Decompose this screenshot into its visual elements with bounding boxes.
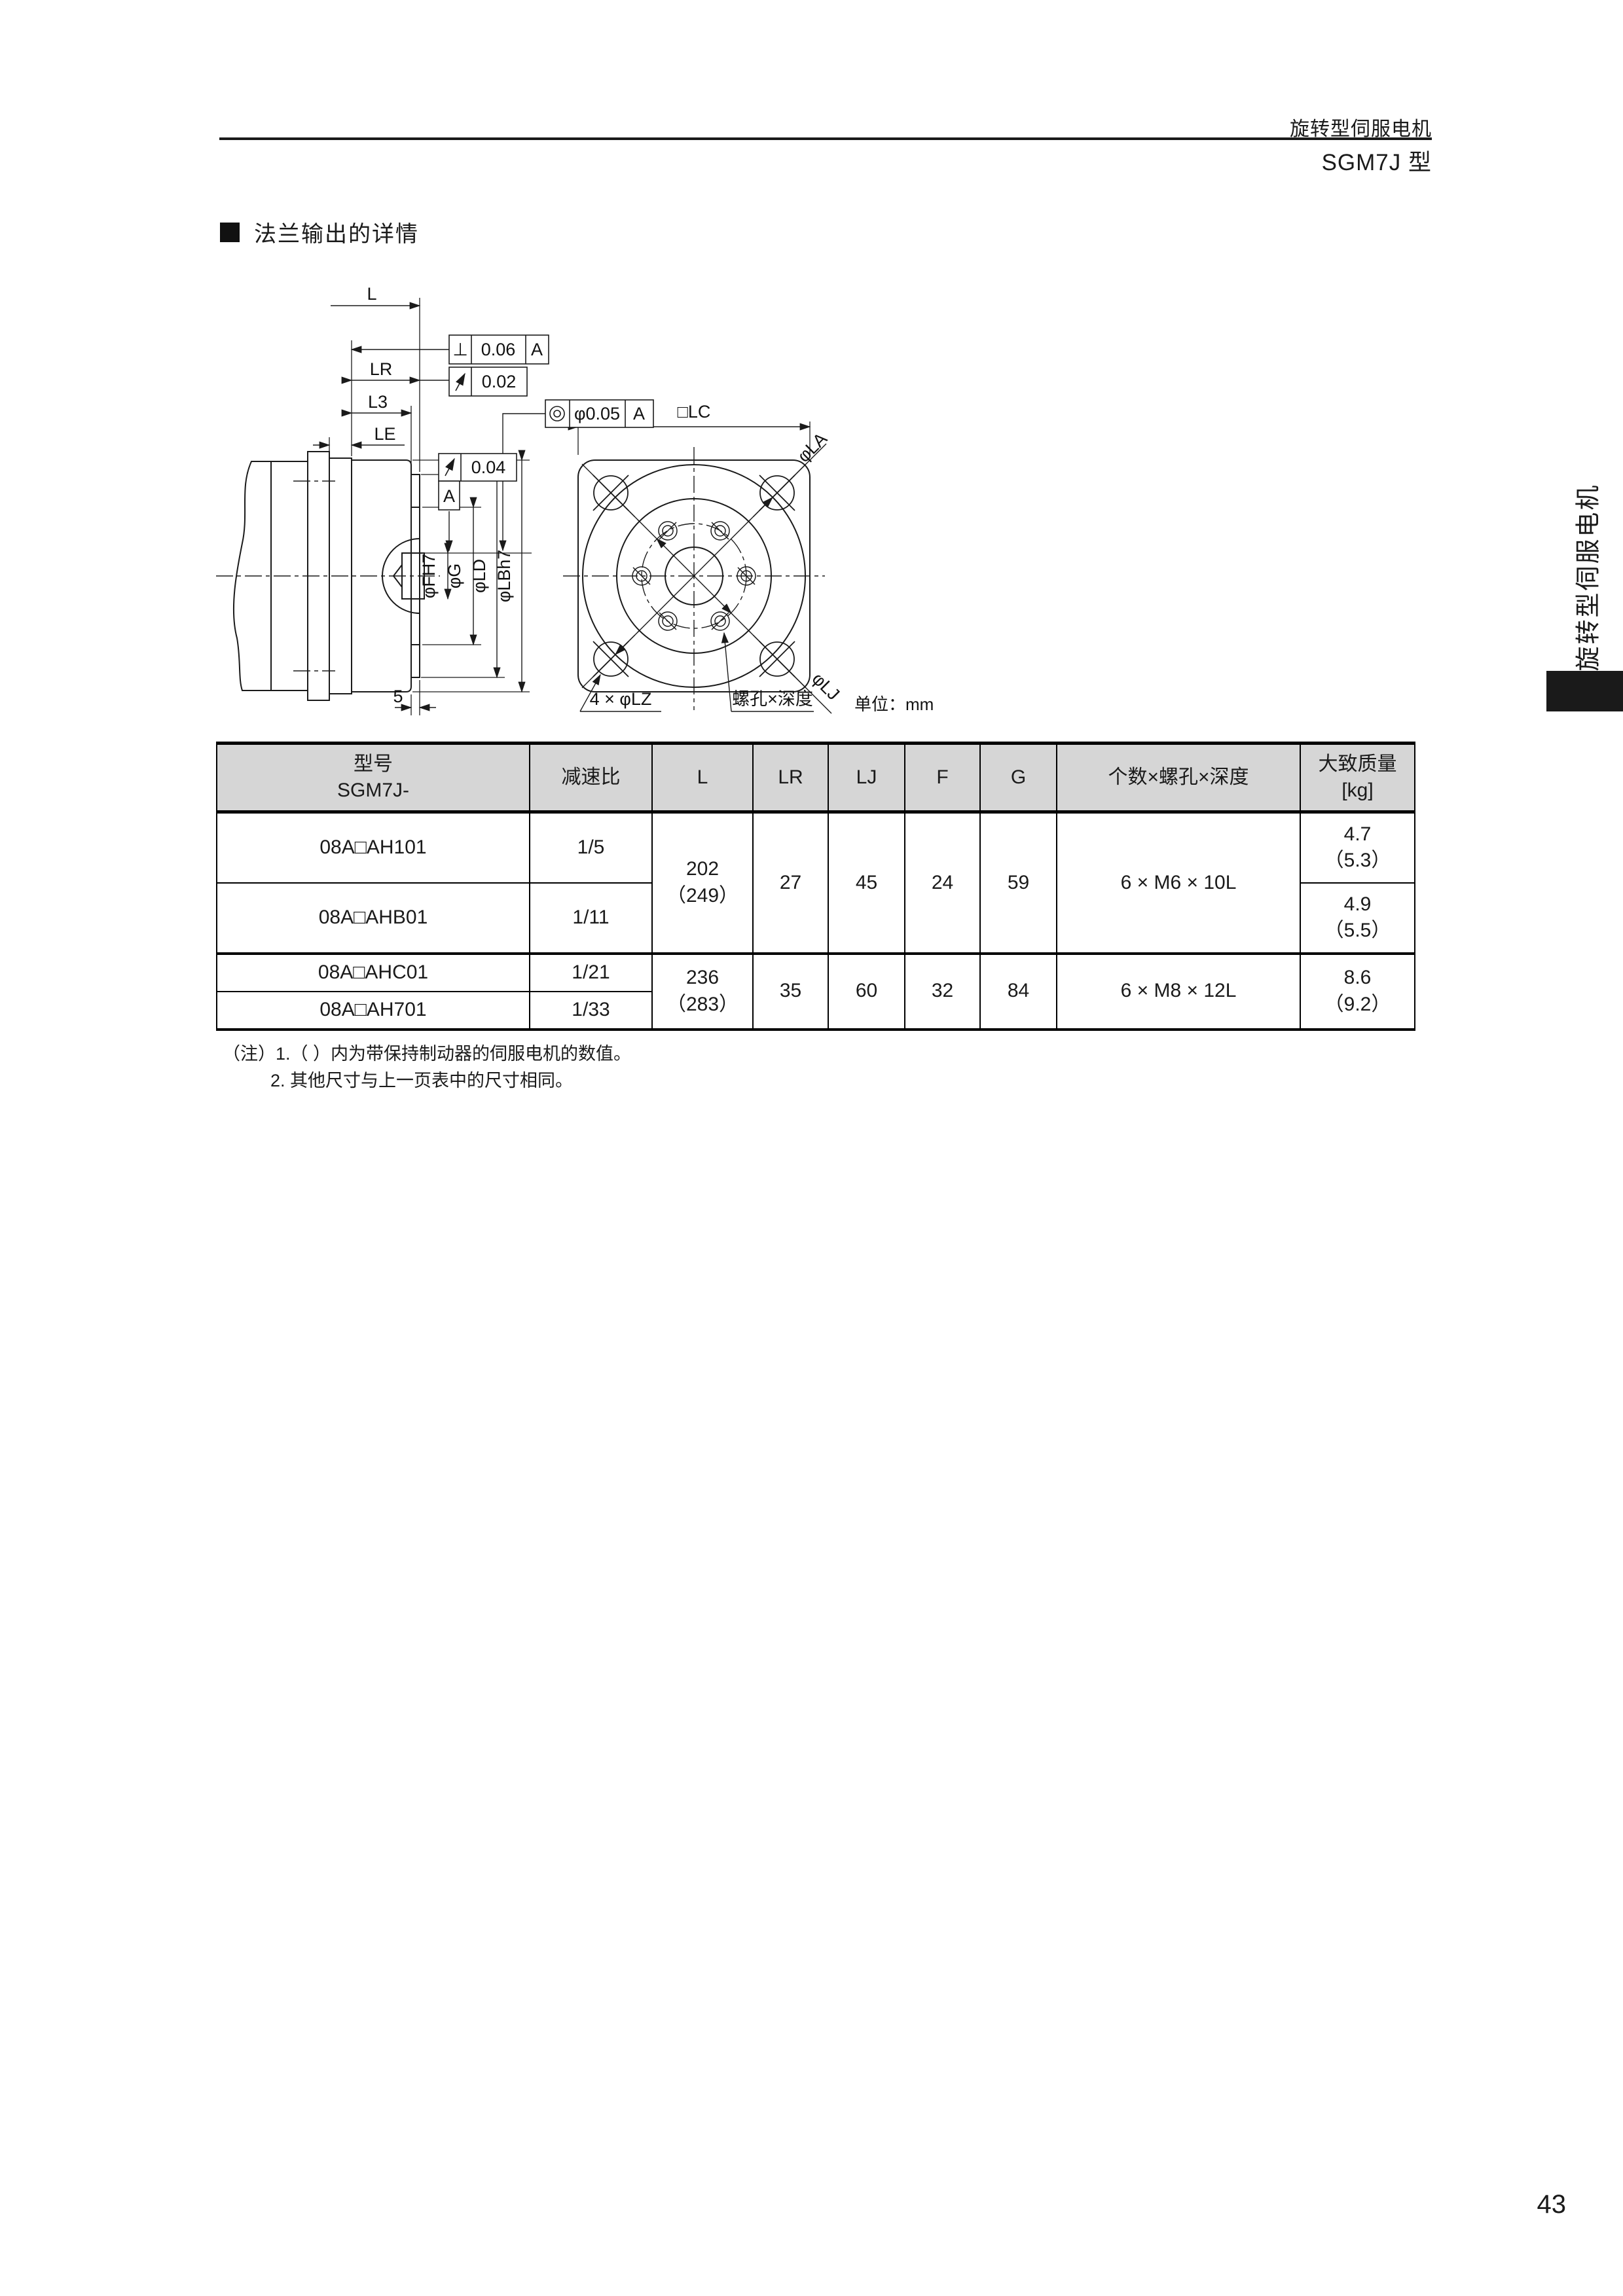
unit-label: 单位：mm <box>854 694 934 714</box>
dim-LBh7: φLBh7 <box>494 550 514 603</box>
cell-screws: 6 × M6 × 10L <box>1057 812 1300 954</box>
dimensions-table: 型号SGM7J- 减速比 L LR LJ F G 个数×螺孔×深度 大致质量[k… <box>216 742 1415 1031</box>
drawing-labels: L LR L3 LE 5 ⊥ 0.06 A 0.02 0.04 A φ0.05 … <box>367 284 934 714</box>
dim-L: L <box>367 284 376 304</box>
tolerance-frames <box>439 335 653 510</box>
dimensions-table-wrap: 型号SGM7J- 减速比 L LR LJ F G 个数×螺孔×深度 大致质量[k… <box>216 742 1414 1031</box>
dim-LA: φLA <box>793 429 831 466</box>
page-number: 43 <box>1537 2190 1567 2219</box>
extension-lines <box>329 298 810 715</box>
cell-model: 08A□AHB01 <box>217 883 530 954</box>
dim-FH7: φFH7 <box>419 554 439 599</box>
col-ratio: 减速比 <box>530 744 652 812</box>
header-divider <box>219 137 1432 140</box>
page-header-subtitle: SGM7J 型 <box>1322 144 1432 177</box>
cell-model: 08A□AH101 <box>217 812 530 883</box>
cell-model: 08A□AHC01 <box>217 954 530 992</box>
col-F: F <box>905 744 980 812</box>
label-4xLZ: 4 × φLZ <box>590 689 652 709</box>
col-screws: 个数×螺孔×深度 <box>1057 744 1300 812</box>
tol-conc-value: φ0.05 <box>574 404 620 423</box>
cell-mass: 8.6（9.2） <box>1300 954 1415 1030</box>
dim-LJ: φLJ <box>808 669 843 704</box>
section-title-text: 法兰输出的详情 <box>254 216 419 248</box>
cell-ratio: 1/21 <box>530 954 652 992</box>
cell-L: 236（283） <box>652 954 753 1030</box>
cell-LJ: 45 <box>828 812 905 954</box>
cell-ratio: 1/11 <box>530 883 652 954</box>
section-title: 法兰输出的详情 <box>220 216 419 248</box>
tol-runout2-value: 0.04 <box>471 457 506 477</box>
cell-ratio: 1/5 <box>530 812 652 883</box>
perpendicularity-icon: ⊥ <box>452 340 468 359</box>
cell-LR: 35 <box>753 954 828 1030</box>
dim-LD: φLD <box>469 559 489 593</box>
dim-LR: LR <box>370 359 393 379</box>
cell-LR: 27 <box>753 812 828 954</box>
table-header-row: 型号SGM7J- 减速比 L LR LJ F G 个数×螺孔×深度 大致质量[k… <box>217 744 1415 812</box>
table-row: 08A□AHC01 1/21 236（283） 35 60 32 84 6 × … <box>217 954 1415 992</box>
dim-LC: □LC <box>678 402 711 422</box>
col-model: 型号SGM7J- <box>217 744 530 812</box>
cell-F: 32 <box>905 954 980 1030</box>
dim-LE: LE <box>374 424 395 444</box>
flange-dimension-drawing: L LR L3 LE 5 ⊥ 0.06 A 0.02 0.04 A φ0.05 … <box>210 278 982 730</box>
dim-L3: L3 <box>368 392 388 412</box>
cell-G: 84 <box>980 954 1057 1030</box>
label-tap-depth: 螺孔×深度 <box>732 689 813 709</box>
datum-a: A <box>443 486 455 506</box>
cell-mass: 4.7（5.3） <box>1300 812 1415 883</box>
section-bullet-icon <box>220 223 240 242</box>
sidebar-section-tab <box>1546 671 1623 711</box>
datum-a: A <box>633 404 645 423</box>
col-L: L <box>652 744 753 812</box>
tol-perp-value: 0.06 <box>481 340 516 359</box>
tol-runout1-value: 0.02 <box>482 372 517 391</box>
cell-F: 24 <box>905 812 980 954</box>
cell-LJ: 60 <box>828 954 905 1030</box>
datum-a: A <box>531 340 543 359</box>
table-row: 08A□AH101 1/5 202（249） 27 45 24 59 6 × M… <box>217 812 1415 883</box>
cell-L: 202（249） <box>652 812 753 954</box>
col-G: G <box>980 744 1057 812</box>
col-mass: 大致质量[kg] <box>1300 744 1415 812</box>
cell-mass: 4.9（5.5） <box>1300 883 1415 954</box>
col-LR: LR <box>753 744 828 812</box>
col-LJ: LJ <box>828 744 905 812</box>
note-2: 2. 其他尺寸与上一页表中的尺寸相同。 <box>270 1066 573 1092</box>
cell-ratio: 1/33 <box>530 992 652 1030</box>
cell-screws: 6 × M8 × 12L <box>1057 954 1300 1030</box>
cell-G: 59 <box>980 812 1057 954</box>
sidebar-vertical-label: 旋转型伺服电机 <box>1568 488 1604 672</box>
dim-5: 5 <box>393 687 403 706</box>
note-1: （注）1.（ ）内为带保持制动器的伺服电机的数值。 <box>223 1039 631 1065</box>
cell-model: 08A□AH701 <box>217 992 530 1030</box>
dim-G: φG <box>445 564 464 589</box>
